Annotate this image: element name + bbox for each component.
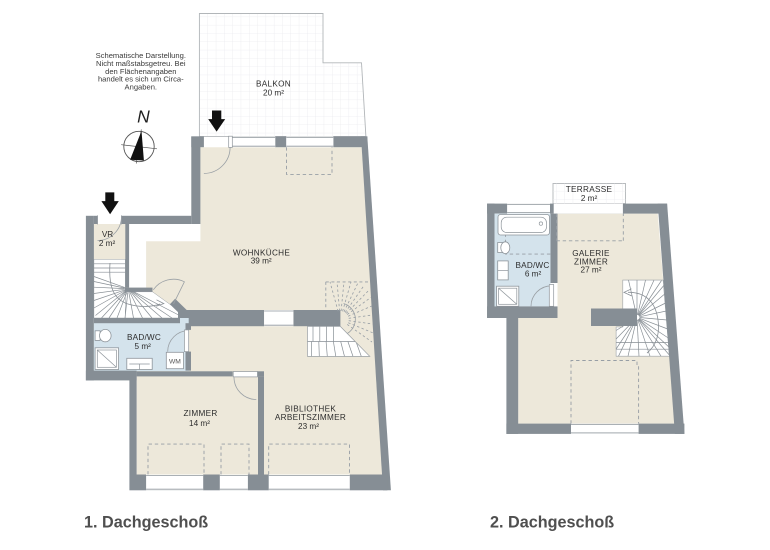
svg-text:39 m²: 39 m² bbox=[251, 257, 272, 266]
svg-text:N: N bbox=[137, 107, 150, 127]
svg-text:BALKON: BALKON bbox=[256, 79, 291, 88]
svg-text:14 m²: 14 m² bbox=[189, 419, 210, 428]
svg-text:VR: VR bbox=[102, 230, 113, 239]
svg-text:TERRASSE: TERRASSE bbox=[566, 185, 613, 194]
svg-text:20 m²: 20 m² bbox=[263, 89, 284, 98]
svg-text:5 m²: 5 m² bbox=[135, 342, 152, 351]
svg-text:2 m²: 2 m² bbox=[581, 194, 598, 203]
svg-text:ARBEITSZIMMER: ARBEITSZIMMER bbox=[275, 413, 346, 422]
svg-text:27 m²: 27 m² bbox=[581, 266, 602, 275]
svg-text:ZIMMER: ZIMMER bbox=[183, 409, 217, 418]
svg-text:6 m²: 6 m² bbox=[525, 269, 542, 278]
svg-text:2 m²: 2 m² bbox=[99, 239, 116, 248]
svg-text:BIBLIOTHEK: BIBLIOTHEK bbox=[285, 404, 336, 413]
svg-text:WM: WM bbox=[169, 358, 181, 365]
svg-text:2. Dachgeschoß: 2. Dachgeschoß bbox=[490, 514, 614, 532]
svg-text:23 m²: 23 m² bbox=[298, 422, 319, 431]
svg-text:1. Dachgeschoß: 1. Dachgeschoß bbox=[84, 514, 208, 532]
svg-text:Angaben.: Angaben. bbox=[125, 83, 158, 92]
